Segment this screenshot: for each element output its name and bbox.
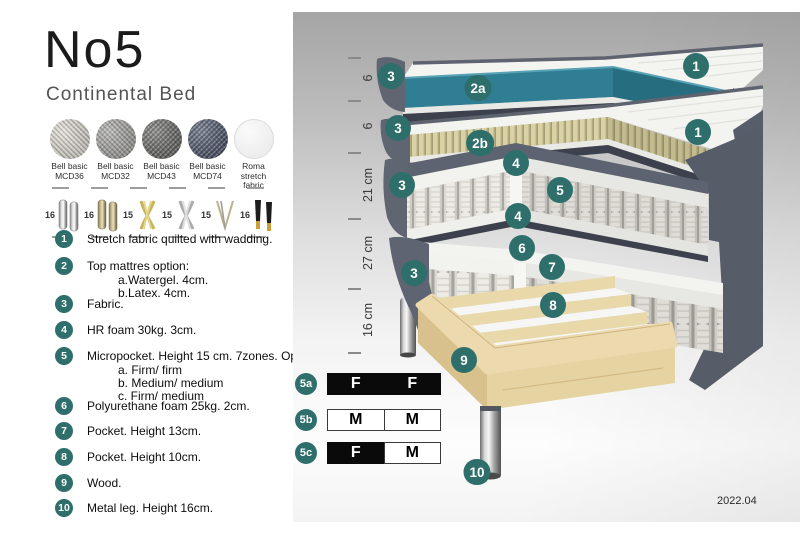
callout-8: 8 [540, 292, 566, 318]
fabric-swatch-icon [96, 119, 136, 159]
fabric-code: MCD36 [55, 171, 84, 181]
ruler-tick [348, 288, 361, 290]
list-item-text: Metal leg. Height 16cm. [87, 499, 213, 516]
ruler-label: 21 cm [361, 150, 377, 220]
callout-6: 6 [509, 235, 535, 261]
list-item-text: HR foam 30kg. 3cm. [87, 321, 196, 338]
cross-gold-leg-icon [134, 198, 160, 232]
page-title: No5 [44, 20, 145, 80]
leg-height: 16 [239, 210, 250, 220]
list-subitem: b.Latex. 4cm. [118, 287, 208, 300]
ruler-label: 27 cm [361, 218, 377, 288]
hairpin-leg-icon [212, 198, 238, 232]
fabric-code: MCD43 [147, 171, 176, 181]
cylinder-silver-leg-icon [56, 198, 82, 232]
fabric-code: MCD32 [101, 171, 130, 181]
firmness-badge: 5a [295, 373, 317, 395]
firmness-cell: M [384, 442, 442, 464]
ruler-tick [348, 218, 361, 220]
list-item-text: Polyurethane foam 25kg. 2cm. [87, 397, 250, 414]
callout-9: 9 [451, 347, 477, 373]
callout-10: 10 [463, 459, 490, 485]
ruler-tick [348, 100, 361, 102]
list-item-text: Wood. [87, 474, 121, 491]
list-item: 8 Pocket. Height 10cm. [55, 448, 201, 466]
list-number-badge: 7 [55, 422, 73, 440]
leg-height: 15 [122, 210, 133, 220]
list-item: 4 HR foam 30kg. 3cm. [55, 321, 196, 339]
list-number-badge: 3 [55, 295, 73, 313]
page-subtitle: Continental Bed [46, 84, 196, 106]
list-number-badge: 1 [55, 230, 73, 248]
firmness-cell: F [384, 373, 442, 395]
firmness-cell: F [327, 442, 385, 464]
cylinder-brass-leg-icon [95, 198, 121, 232]
list-item-text: Stretch fabric quilted with wadding. [87, 230, 272, 247]
fabric-swatch: Bell basicMCD32 [94, 119, 137, 191]
fabric-swatch-icon [234, 119, 274, 159]
callout-3-latex: 3 [385, 115, 411, 141]
list-item-text: Top mattres option: [87, 257, 208, 274]
list-number-badge: 4 [55, 321, 73, 339]
fabric-swatch-icon [50, 119, 90, 159]
callout-4-top: 4 [503, 150, 529, 176]
firmness-badge: 5b [295, 409, 317, 431]
ruler-tick [348, 352, 361, 354]
fabric-name: Bell basic [189, 161, 225, 171]
fabric-swatch-icon [188, 119, 228, 159]
callout-5: 5 [547, 177, 573, 203]
list-number-badge: 6 [55, 397, 73, 415]
callout-1-latex: 1 [685, 119, 711, 145]
fabric-swatch: Bell basicMCD74 [186, 119, 229, 191]
ruler-tick [348, 152, 361, 154]
diagram-panel: 6 6 21 cm 27 cm 16 cm 1 3 2a 3 1 2b 4 3 … [293, 12, 800, 522]
list-item-text: Pocket. Height 13cm. [87, 422, 201, 439]
list-number-badge: 5 [55, 347, 73, 365]
fabric-swatches: Bell basicMCD36 Bell basicMCD32 Bell bas… [48, 119, 275, 191]
list-item-text: Micropocket. Height 15 cm. 7zones. Optio… [87, 347, 320, 364]
cross-silver-leg-icon [173, 198, 199, 232]
fabric-name: Roma [242, 161, 265, 171]
callout-3-21cm: 3 [389, 172, 415, 198]
callout-7: 7 [539, 254, 565, 280]
fabric-name: Bell basic [97, 161, 133, 171]
list-item-text: Fabric. [87, 295, 124, 312]
list-number-badge: 2 [55, 257, 73, 275]
list-item-text: Pocket. Height 10cm. [87, 448, 201, 465]
fabric-name: Bell basic [51, 161, 87, 171]
callout-4-bottom: 4 [505, 203, 531, 229]
list-item: 7 Pocket. Height 13cm. [55, 422, 201, 440]
leg-height: 15 [161, 210, 172, 220]
fabric-swatch: Bell basicMCD43 [140, 119, 183, 191]
callout-3-27cm: 3 [401, 260, 427, 286]
product-sheet: No5 Continental Bed Bell basicMCD36 Bell… [0, 0, 800, 533]
ruler-label: 16 cm [361, 285, 377, 355]
firmness-cell: F [327, 373, 385, 395]
list-number-badge: 8 [55, 448, 73, 466]
list-item: 2 Top mattres option: a.Watergel. 4cm. b… [55, 257, 208, 300]
leg-height: 16 [44, 210, 55, 220]
fabric-swatch: Romastretch fabric [232, 119, 275, 191]
firmness-cell: M [384, 409, 442, 431]
list-number-badge: 9 [55, 474, 73, 492]
fabric-swatch: Bell basicMCD36 [48, 119, 91, 191]
list-number-badge: 10 [55, 499, 73, 517]
firmness-row-5b: 5b M M [295, 409, 441, 431]
list-item: 10 Metal leg. Height 16cm. [55, 499, 213, 517]
version-label: 2022.04 [717, 495, 757, 507]
fabric-name: Bell basic [143, 161, 179, 171]
callout-1-top: 1 [683, 53, 709, 79]
list-item: 1 Stretch fabric quilted with wadding. [55, 230, 272, 248]
firmness-row-5a: 5a F F [295, 373, 441, 395]
firmness-badge: 5c [295, 442, 317, 464]
list-subitem: a.Watergel. 4cm. [118, 274, 208, 287]
leg-height: 15 [200, 210, 211, 220]
list-subitem: a. Firm/ firm [118, 364, 320, 377]
callout-2b: 2b [466, 130, 494, 156]
callout-3-topper: 3 [378, 63, 404, 89]
list-item: 6 Polyurethane foam 25kg. 2cm. [55, 397, 250, 415]
callout-2a: 2a [464, 75, 491, 101]
fabric-swatch-icon [142, 119, 182, 159]
list-item: 3 Fabric. [55, 295, 124, 313]
list-subitem: b. Medium/ medium [118, 377, 320, 390]
tapered-black-gold-leg-icon [251, 198, 277, 232]
list-item: 9 Wood. [55, 474, 121, 492]
fabric-code: MCD74 [193, 171, 222, 181]
leg-height: 16 [83, 210, 94, 220]
ruler-tick [348, 57, 361, 59]
firmness-cell: M [327, 409, 385, 431]
list-item: 5 Micropocket. Height 15 cm. 7zones. Opt… [55, 347, 320, 402]
firmness-row-5c: 5c F M [295, 442, 441, 464]
